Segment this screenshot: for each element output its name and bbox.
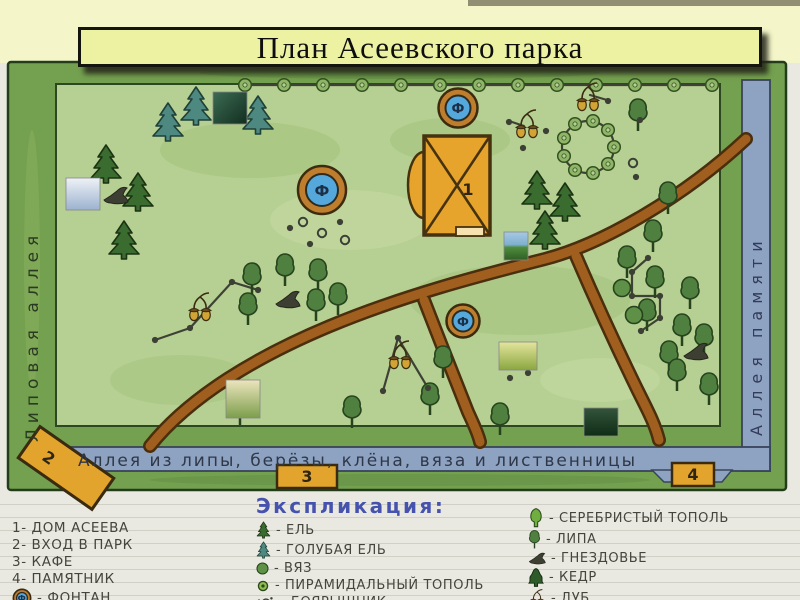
hawthorn-bush-icon [558,132,571,145]
dot-mark [605,98,611,104]
fountain-middle: Ф [447,305,480,338]
hawthorn-bush-icon [629,79,642,92]
hawthorn-bush-icon [434,79,447,92]
hawthorn-bush-icon [512,79,525,92]
legend-item-monument: 4- памятник [12,571,133,587]
dot-mark [645,255,651,261]
slide-page: 1 Ф Ф Ф 2 3 4 Липовая ал [0,0,800,600]
dot-mark [657,315,663,321]
legend-item-entrance: 2- вход в парк [12,537,133,553]
cedar-icon [528,568,544,587]
legend-item-linden: - липа [528,530,729,549]
dot-mark [525,370,531,376]
legend-item-label: 3- кафе [12,554,73,570]
dot-mark [255,287,261,293]
spruce-icon [256,521,271,539]
photo-acorns [499,342,537,370]
dot-mark [638,328,644,334]
legend-item-label: 1- дом Асеева [12,520,129,536]
hawthorn-icon [256,596,276,600]
legend-item-cedar: - кедр [528,568,729,587]
slide-title: План Асеевского парка [257,32,584,63]
hawthorn-bush-icon [558,150,571,163]
legend-item-label: - кедр [549,570,597,585]
hawthorn-bush-icon [587,115,600,128]
photo-tree [504,232,528,260]
dot-mark [629,293,635,299]
linden-alley-label: Липовая аллея [23,230,43,442]
hawthorn-bush-icon [668,79,681,92]
legend-item-label: - пирамидальный тополь [275,578,484,593]
house-entrance [456,227,484,236]
fountain-icon: Ф [12,588,32,600]
legend-item-label: - голубая ель [276,543,386,558]
elm-tree-icon [626,307,643,324]
legend-item-label: 4- памятник [12,571,115,587]
dot-mark [152,337,158,343]
hawthorn-bush-icon [602,158,615,171]
legend-item-label: - серебристый тополь [549,511,729,526]
park-frame [8,62,786,490]
legend-plants: Экспликация: - ель - голубая ель - вяз -… [256,494,484,600]
linden-icon [528,530,541,549]
monument-marker-label: 4 [687,465,698,484]
legend-plants-2: - серебристый тополь - липа - гнездовье … [528,508,729,600]
band-shade [200,67,600,79]
dot-mark [507,375,513,381]
hawthorn-bush-icon [473,79,486,92]
dot-mark [629,269,635,275]
legend-item-fountain: Ф - фонтан [12,588,133,600]
legend-item-elm: - вяз [256,561,484,576]
hawthorn-bush-icon [569,118,582,131]
photo-dark-trees [584,408,618,436]
dot-mark [287,225,293,231]
fountain-letter: Ф [315,182,330,200]
hawthorn-bush-icon [278,79,291,92]
dot-mark [425,385,431,391]
hawthorn-bush-icon [587,167,600,180]
house-number-label: 1 [462,180,473,199]
pyramidal-poplar-icon [256,579,270,593]
dot-mark [520,145,526,151]
memory-alley-label: Аллея памяти [747,234,766,436]
dot-mark [380,388,386,394]
elm-icon [256,562,269,575]
legend-item-label: - боярышник [281,595,387,600]
hawthorn-bush-icon [239,79,252,92]
dot-mark [633,174,639,180]
elm-tree-icon [614,280,631,297]
legend-numbers: 1- дом Асеева 2- вход в парк 3- кафе 4- … [12,520,133,600]
legend-item-label: - липа [546,532,597,547]
legend-item-oak: - дуб [528,589,729,600]
fountain-letter: Ф [452,102,465,117]
dot-mark [637,117,643,123]
dot-mark [307,241,313,247]
legend-item-label: - фонтан [37,590,111,600]
legend-title: Экспликация: [256,494,484,518]
fountain-left: Ф [298,166,346,214]
band-shade [150,474,650,486]
legend-item-hawthorn: - боярышник [256,595,484,600]
hawthorn-bush-icon [356,79,369,92]
hawthorn-bush-icon [569,164,582,177]
legend-item-spruce: - ель [256,521,484,539]
hawthorn-bush-icon [602,124,615,137]
legend-item-label: - дуб [551,591,590,600]
bottom-alley-label: Аллея из липы, берёзы, клёна, вяза и лис… [78,451,637,471]
legend-item-label: - гнездовье [551,551,647,566]
dot-mark [187,325,193,331]
legend-item-nest: - гнездовье [528,551,729,566]
legend-item-label: - вяз [274,561,312,576]
oak-acorns-icon [528,589,546,600]
blue-spruce-icon [256,541,271,559]
hawthorn-bush-icon [706,79,719,92]
dot-mark [506,119,512,125]
legend-item-blue-spruce: - голубая ель [256,541,484,559]
dot-mark [657,293,663,299]
hawthorn-bush-icon [608,141,621,154]
silver-poplar-icon [528,508,544,528]
hawthorn-bush-icon [395,79,408,92]
legend-item-pyramidal-poplar: - пирамидальный тополь [256,578,484,593]
hawthorn-bush-icon [551,79,564,92]
svg-text:Ф: Ф [18,593,27,600]
dot-mark [229,279,235,285]
hawthorn-bush-icon [317,79,330,92]
legend-item-silver-poplar: - серебристый тополь [528,508,729,528]
legend-item-label: - ель [276,523,315,538]
monument-marker: 4 [672,463,714,486]
nest-icon [528,552,546,565]
dot-mark [337,219,343,225]
legend-item-label: 2- вход в парк [12,537,133,553]
photo-linden-flowers [226,380,260,418]
legend-item-house: 1- дом Асеева [12,520,133,536]
fountain-top: Ф [439,89,478,128]
dot-mark [395,335,401,341]
photo-blue-spruce [213,92,247,124]
fountain-letter: Ф [457,315,469,329]
dot-mark [543,128,549,134]
title-bar: План Асеевского парка [78,27,762,67]
photo-blossoms [66,178,100,210]
legend-item-cafe: 3- кафе [12,554,133,570]
